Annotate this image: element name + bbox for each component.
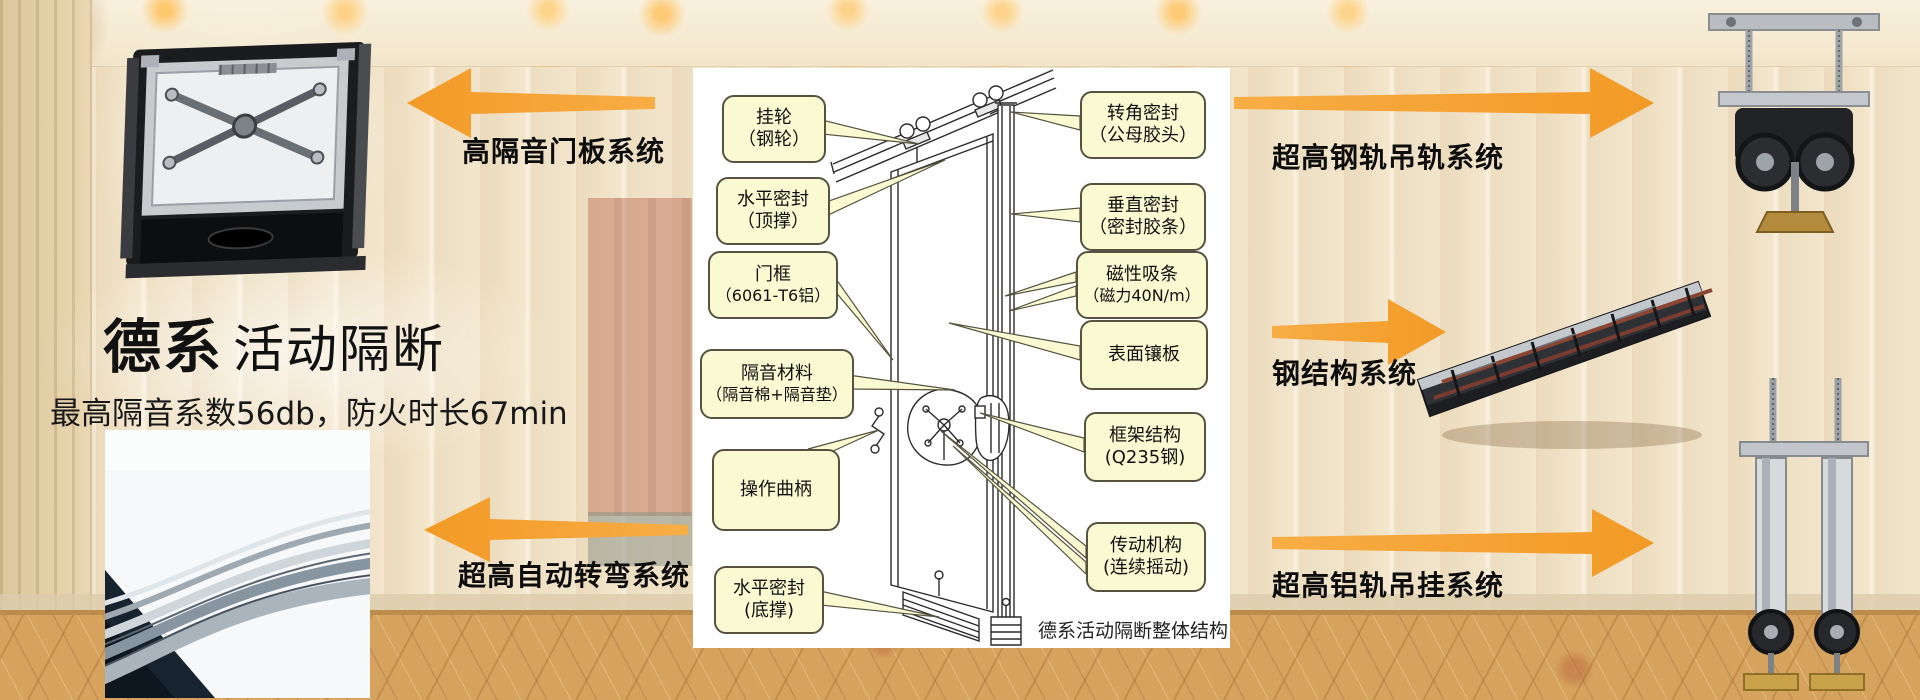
callout-line: 操作曲柄 bbox=[740, 479, 812, 501]
callout-horizontal-seal-bottom: 水平密封 (底撑) bbox=[714, 566, 824, 634]
headline-subtitle: 最高隔音系数56db，防火时长67min bbox=[50, 388, 568, 433]
callout-operating-crank: 操作曲柄 bbox=[712, 449, 840, 531]
callout-line: 挂轮 bbox=[756, 107, 792, 129]
callout-frame-structure: 框架结构 (Q235钢) bbox=[1084, 412, 1206, 482]
feature-auto-turning-label: 超高自动转弯系统 bbox=[458, 554, 690, 594]
callout-vertical-seal: 垂直密封 （密封胶条） bbox=[1080, 183, 1206, 251]
callout-line: (Q235钢) bbox=[1105, 447, 1186, 469]
callout-transmission-mechanism: 传动机构 (连续摇动) bbox=[1086, 522, 1206, 592]
callout-hanging-wheel: 挂轮 （钢轮） bbox=[722, 95, 826, 163]
callout-line: 水平密封 bbox=[737, 189, 809, 211]
brand-name: 德系 bbox=[103, 313, 223, 381]
callout-line: （6061-T6铝） bbox=[716, 286, 830, 306]
callout-line: （隔音棉+隔音垫） bbox=[706, 385, 847, 405]
callout-line: （公母胶头） bbox=[1089, 125, 1197, 147]
callout-line: （密封胶条） bbox=[1089, 217, 1197, 239]
callout-corner-seal: 转角密封 （公母胶头） bbox=[1080, 91, 1206, 159]
callout-line: 水平密封 bbox=[733, 578, 805, 600]
callout-line: 传动机构 bbox=[1110, 535, 1182, 557]
callout-line: 垂直密封 bbox=[1107, 195, 1179, 217]
feature-steel-structure-label: 钢结构系统 bbox=[1272, 352, 1417, 392]
callout-line: （顶撑） bbox=[737, 211, 809, 233]
callout-line: (底撑) bbox=[744, 600, 794, 622]
door-panel-module-photo bbox=[103, 3, 391, 315]
callout-surface-panel: 表面镶板 bbox=[1080, 320, 1208, 390]
callout-line: （钢轮） bbox=[738, 129, 810, 151]
callout-magnetic-strip: 磁性吸条 （磁力40N/m） bbox=[1076, 251, 1208, 319]
callout-sound-insulation-material: 隔音材料 （隔音棉+隔音垫） bbox=[700, 349, 854, 419]
callout-line: 表面镶板 bbox=[1108, 344, 1180, 366]
arrow-left-icon bbox=[405, 64, 657, 140]
slide: 德系活动隔断 最高隔音系数56db，防火时长67min 高隔音门板系统 超高自动… bbox=[0, 0, 1920, 700]
arrow-right-icon bbox=[1232, 64, 1656, 140]
callout-door-frame: 门框 （6061-T6铝） bbox=[708, 251, 838, 319]
steel-structure-photo bbox=[1412, 230, 1714, 465]
callout-horizontal-seal-top: 水平密封 （顶撑） bbox=[716, 177, 830, 245]
callout-line: 框架结构 bbox=[1109, 425, 1181, 447]
callout-line: 门框 bbox=[755, 264, 791, 286]
aluminum-hanger-photo bbox=[1678, 378, 1920, 700]
red-partition-background bbox=[588, 198, 692, 516]
callout-line: 转角密封 bbox=[1107, 103, 1179, 125]
product-name: 活动隔断 bbox=[233, 321, 445, 380]
diagram-caption: 德系活动隔断整体结构 bbox=[1038, 616, 1228, 643]
callout-line: 隔音材料 bbox=[741, 363, 813, 385]
callout-line: 磁性吸条 bbox=[1106, 264, 1178, 286]
feature-door-panel-label: 高隔音门板系统 bbox=[462, 130, 665, 170]
curved-track-photo bbox=[105, 430, 370, 698]
steel-hanger-photo bbox=[1675, 6, 1913, 242]
feature-steel-rail-label: 超高钢轨吊轨系统 bbox=[1272, 136, 1504, 176]
headline: 德系活动隔断 bbox=[103, 300, 445, 384]
feature-aluminum-rail-label: 超高铝轨吊挂系统 bbox=[1272, 564, 1504, 604]
callout-line: (连续摇动) bbox=[1103, 557, 1189, 579]
callout-line: （磁力40N/m） bbox=[1083, 286, 1200, 306]
